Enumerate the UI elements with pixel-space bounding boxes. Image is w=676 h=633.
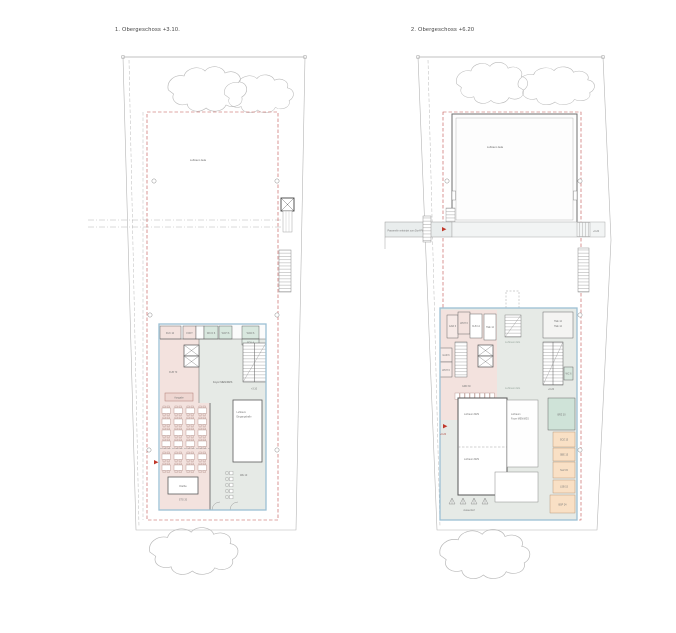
label-gar-top: GAR 6 — [449, 325, 457, 328]
label-wch: WCH 6 — [222, 332, 230, 335]
label-slz: SLZ 15 — [560, 469, 568, 472]
label-we10: WE 10 — [240, 474, 248, 477]
label-bsp: BSP 24 — [558, 504, 567, 507]
building-1og: KUK 10 FOKT WC D 6 WCH 6 WCD 6 FOY 4 KUB… — [159, 324, 266, 510]
tree-top-right — [456, 62, 594, 104]
label-klb: KLB 12 — [472, 325, 481, 328]
label-mzs-b: Luftraum MZS — [464, 458, 480, 461]
label-kuk: KUK 10 — [166, 332, 175, 335]
label-exit-level: +6.20 — [440, 433, 447, 436]
corridor-gap — [196, 326, 204, 339]
label-wc6: WC 6 — [566, 373, 573, 376]
tree-top-left — [168, 67, 293, 113]
stair-context-right — [578, 248, 589, 292]
label-ausgabe: Ausgabe — [174, 397, 184, 400]
label-soz: SOZ 15 — [560, 439, 569, 442]
label-level-310: +3.10 — [251, 388, 258, 391]
label-bridge-level: +6.20 — [593, 230, 600, 233]
label-luftraum-aula-left: Luftraum Aula — [190, 158, 207, 162]
exit-marker-left — [154, 460, 158, 464]
label-tee-top: TEE 12 — [486, 326, 495, 329]
stair-1og — [243, 343, 266, 382]
stair-center — [505, 315, 521, 337]
tree-bottom-right — [440, 530, 530, 579]
aula-volume: Luftraum Aula — [446, 114, 577, 224]
label-mzs-a: Luftraum MZS — [464, 413, 480, 416]
label-foyer: Foyer MEN/MZS — [213, 380, 233, 384]
label-wch-side: WCH 6 — [442, 369, 450, 372]
elevator-shafts-left — [184, 345, 199, 367]
terrace-void — [495, 472, 538, 502]
label-level-620: +6.20 — [548, 388, 555, 391]
passerelle-axis — [88, 220, 282, 227]
label-brz: BRZ 30 — [557, 414, 566, 417]
label-stg: STG 20 — [179, 499, 188, 502]
building-2og: GAR 6 WCH 6 KLB 12 TEE 12 GAR 6 WCH 6 GR… — [440, 308, 577, 520]
label-foyer-void-1: Luftraum — [511, 413, 520, 416]
tree-bottom-left — [150, 528, 238, 575]
plan-1og: 1. Obergeschoss +3.10. — [88, 27, 307, 574]
label-fokt: FOKT — [186, 332, 193, 335]
label-luftraum-2: Eingangshalle — [237, 416, 253, 419]
label-tee2: TEE 12 — [554, 325, 563, 328]
shaft-existing — [281, 198, 294, 232]
elevator-shafts-right — [478, 345, 493, 367]
void-eingangshalle — [233, 400, 262, 462]
label-wcd2: WCD 6 — [247, 332, 255, 335]
label-aussenhof: Aussenhof — [463, 509, 475, 512]
label-kub: KUB 70 — [169, 371, 178, 374]
plan-2og: 2. Obergeschoss +6.20 — [385, 27, 611, 579]
label-grd: GRD 30 — [462, 385, 471, 388]
void-foyer — [507, 400, 538, 467]
label-kueche: Küche — [179, 484, 187, 488]
label-wch-top: WCH 6 — [460, 322, 468, 325]
label-luftraum-aula-right: Luftraum Aula — [487, 145, 504, 149]
label-foyer-void-2: Foyer MEN/MZS — [511, 418, 529, 421]
label-luftraum-1: Luftraum — [237, 411, 246, 414]
label-sbe: SBE 15 — [560, 454, 569, 457]
label-lsb: LSB 15 — [560, 486, 569, 489]
plan-1og-title: 1. Obergeschoss +3.10. — [115, 27, 180, 33]
stair-context-left — [279, 250, 291, 292]
plan-2og-title: 2. Obergeschoss +6.20 — [411, 27, 474, 33]
label-tee1: TEE 12 — [554, 320, 563, 323]
stair-left-wing — [455, 342, 467, 377]
label-gar-side: GAR 6 — [442, 354, 450, 357]
label-luftraum-eg-b: Luftraum EG — [505, 386, 520, 390]
label-luftraum-eg-a: Luftraum EG — [505, 340, 520, 344]
stair-2og — [543, 342, 563, 385]
label-wcd: WC D 6 — [207, 332, 216, 335]
label-passerelle: Passerelle verbindet zum Dorf-Platz — [388, 230, 427, 233]
plans-drawing: 1. Obergeschoss +3.10. — [0, 0, 676, 633]
floor-plan-sheet: 1. Obergeschoss +3.10. — [0, 0, 676, 633]
